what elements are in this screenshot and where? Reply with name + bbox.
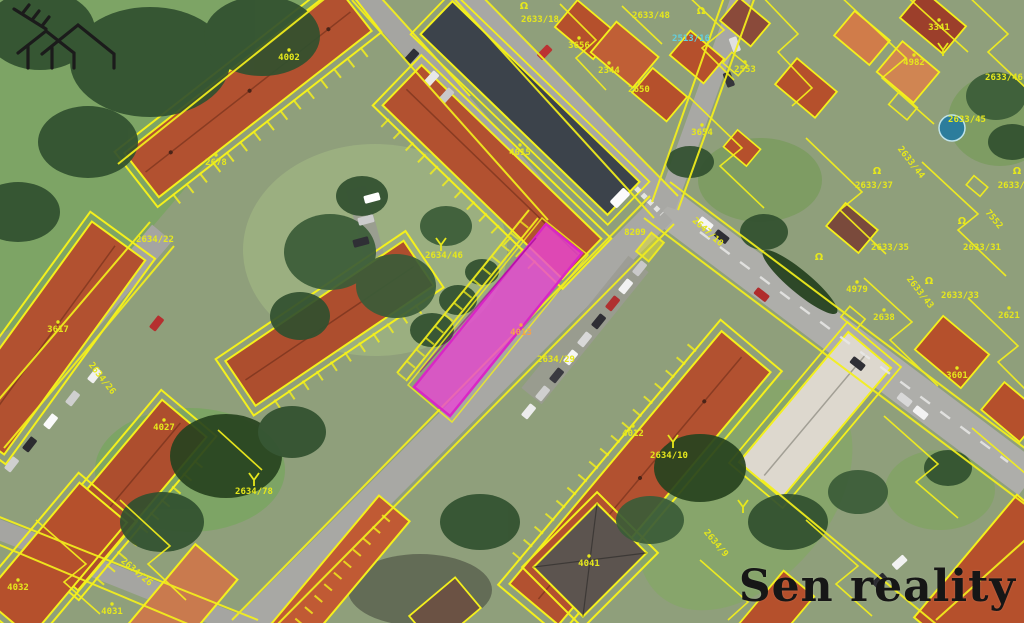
svg-text:2633/35: 2633/35 <box>871 243 909 253</box>
svg-text:2634/78: 2634/78 <box>235 487 273 497</box>
svg-text:8209: 8209 <box>624 228 646 238</box>
svg-text:2634/46: 2634/46 <box>425 251 463 261</box>
loop-symbol: Ω <box>520 1 529 12</box>
parcel-label: 2633/2 <box>998 181 1024 191</box>
svg-text:2634/22: 2634/22 <box>136 235 174 245</box>
svg-text:4012: 4012 <box>622 429 644 439</box>
svg-text:3341: 3341 <box>928 23 950 33</box>
svg-text:4041: 4041 <box>578 559 600 569</box>
svg-text:4982: 4982 <box>903 58 925 68</box>
svg-text:3617: 3617 <box>47 325 69 335</box>
parcel-label: 2634/46 <box>425 251 463 261</box>
loop-symbol: Ω <box>697 6 706 17</box>
svg-text:2633/37: 2633/37 <box>855 181 893 191</box>
svg-text:2633/33: 2633/33 <box>941 291 979 301</box>
parcel-label: 2633/33 <box>941 291 979 301</box>
parcel-label: 2633/37 <box>855 181 893 191</box>
aerial-cadastral-map: ΩΩΩΩΩΩΩ 400226782634/224015361740272634/… <box>0 0 1024 623</box>
loop-symbol: Ω <box>815 252 824 263</box>
svg-text:2650: 2650 <box>628 85 650 95</box>
svg-text:2621: 2621 <box>998 311 1020 321</box>
svg-text:2633/18: 2633/18 <box>521 15 559 25</box>
svg-text:2633/46: 2633/46 <box>985 73 1023 83</box>
loop-symbol: Ω <box>873 166 882 177</box>
map-canvas: ΩΩΩΩΩΩΩ 400226782634/224015361740272634/… <box>0 0 1024 623</box>
loop-symbol: Ω <box>958 216 967 227</box>
svg-text:4002: 4002 <box>278 53 300 63</box>
svg-text:2634/29: 2634/29 <box>537 355 575 365</box>
parcel-label: 2513/16 <box>672 34 710 44</box>
parcel-label: 2633/48 <box>632 11 670 21</box>
parcel-label: 2633/46 <box>985 73 1023 83</box>
svg-text:4013: 4013 <box>510 328 532 338</box>
svg-text:2633/48: 2633/48 <box>632 11 670 21</box>
svg-text:4979: 4979 <box>846 285 868 295</box>
svg-text:3654: 3654 <box>691 128 713 138</box>
svg-text:4032: 4032 <box>7 583 29 593</box>
parcel-label: 2633/18 <box>521 15 559 25</box>
svg-text:2513/16: 2513/16 <box>672 34 710 44</box>
loop-symbol: Ω <box>925 276 934 287</box>
svg-text:4027: 4027 <box>153 423 175 433</box>
svg-text:2638: 2638 <box>873 313 895 323</box>
parcel-label: 2633/45 <box>948 115 986 125</box>
parcel-label: 2634/78 <box>235 487 273 497</box>
parcel-label: 2633/35 <box>871 243 909 253</box>
parcel-label: 2633/31 <box>963 243 1001 253</box>
svg-text:4031: 4031 <box>101 607 123 617</box>
svg-text:2553: 2553 <box>734 65 756 75</box>
loop-symbol: Ω <box>1013 166 1022 177</box>
svg-text:2633/31: 2633/31 <box>963 243 1001 253</box>
svg-text:2344: 2344 <box>598 66 620 76</box>
svg-text:4015: 4015 <box>509 148 531 158</box>
svg-text:2634/10: 2634/10 <box>650 451 688 461</box>
svg-text:3601: 3601 <box>946 371 968 381</box>
parcel-label: 8209 <box>624 228 646 238</box>
svg-text:2633/45: 2633/45 <box>948 115 986 125</box>
parcel-label: 2634/22 <box>136 235 174 245</box>
parcel-label: 2634/29 <box>537 355 575 365</box>
svg-text:2633/2: 2633/2 <box>998 181 1024 191</box>
parcel-label: 2634/10 <box>650 451 688 461</box>
svg-text:3656: 3656 <box>568 41 590 51</box>
svg-text:2678: 2678 <box>205 158 227 168</box>
